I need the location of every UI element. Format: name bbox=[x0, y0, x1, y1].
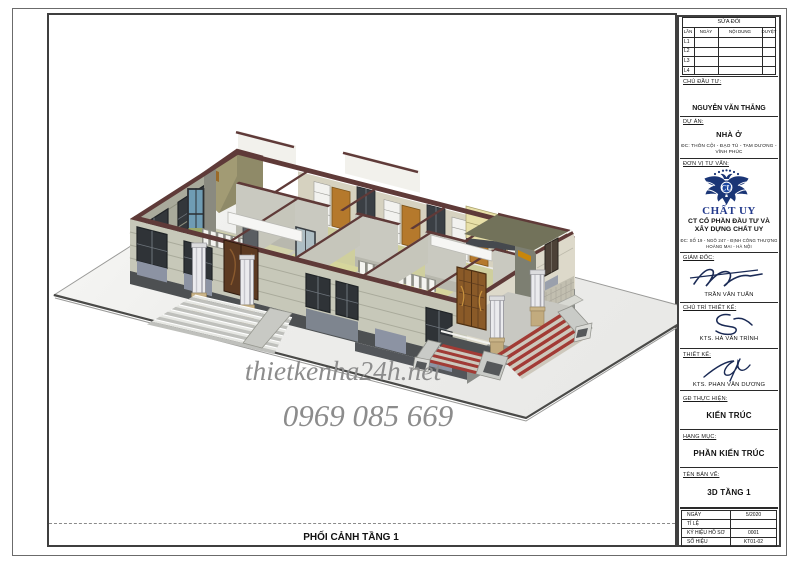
svg-text:0969 085 669: 0969 085 669 bbox=[283, 398, 454, 433]
svg-text:CU: CU bbox=[721, 184, 733, 193]
svg-text:thietkenha24h.net: thietkenha24h.net bbox=[245, 355, 443, 386]
